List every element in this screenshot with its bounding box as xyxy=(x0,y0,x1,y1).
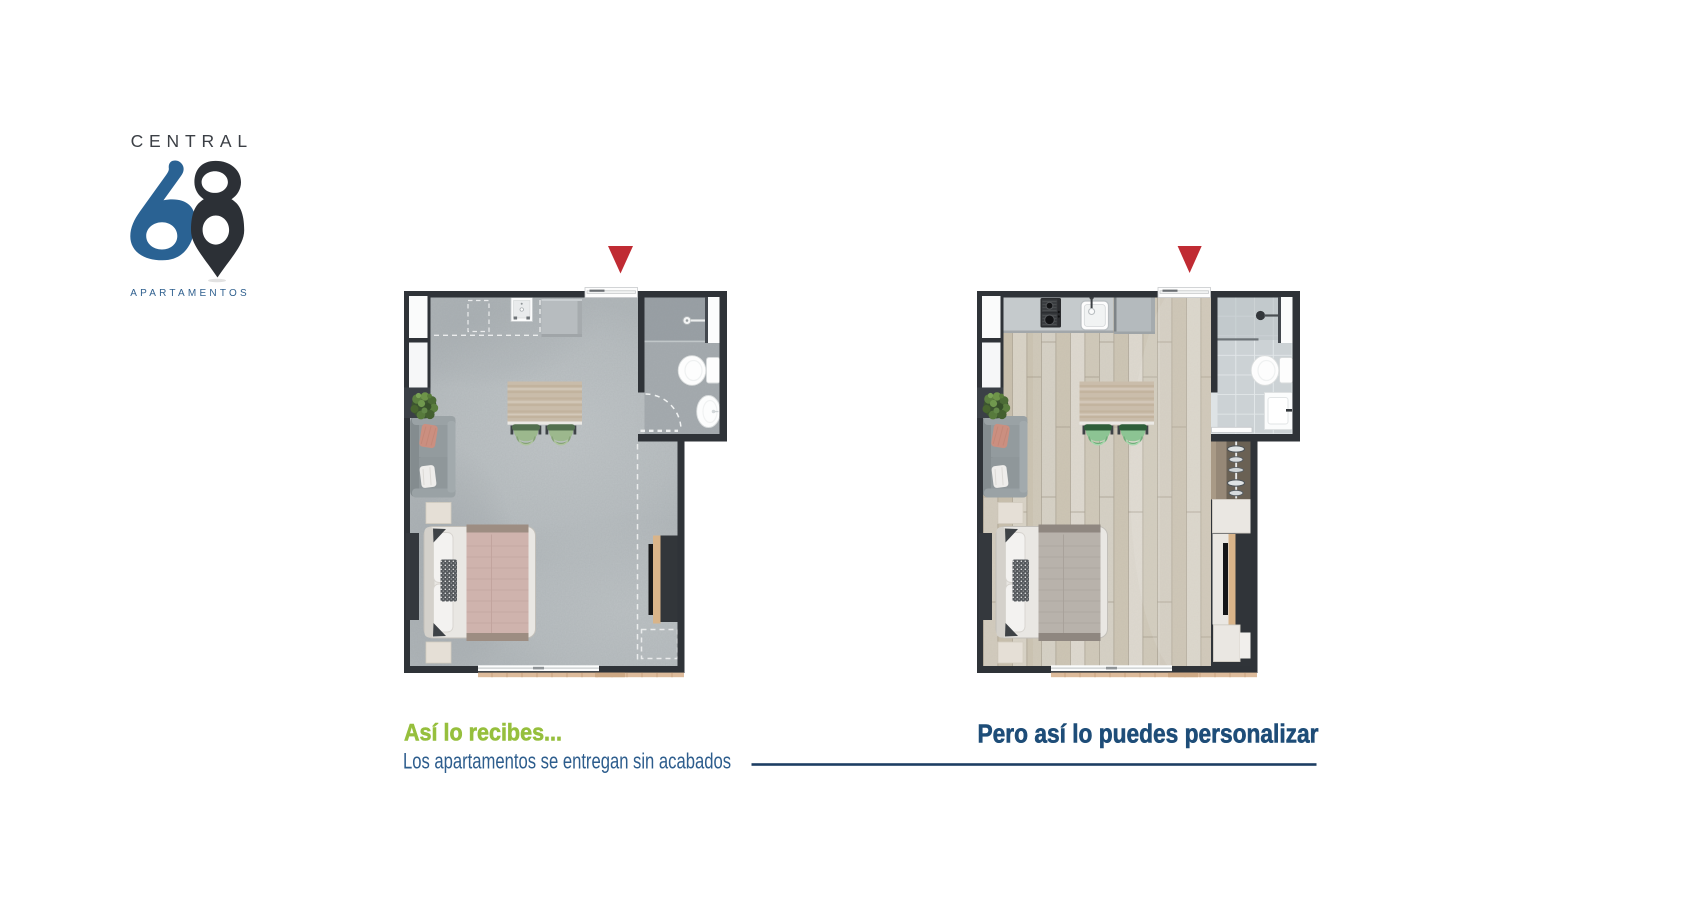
svg-text:Pero así lo puedes personaliza: Pero así lo puedes personalizar xyxy=(978,721,1319,749)
svg-text:Los apartamentos se entregan s: Los apartamentos se entregan sin acabado… xyxy=(403,749,731,774)
svg-text:Así lo recibes...: Así lo recibes... xyxy=(404,720,562,747)
svg-text:CENTRAL: CENTRAL xyxy=(131,131,253,151)
